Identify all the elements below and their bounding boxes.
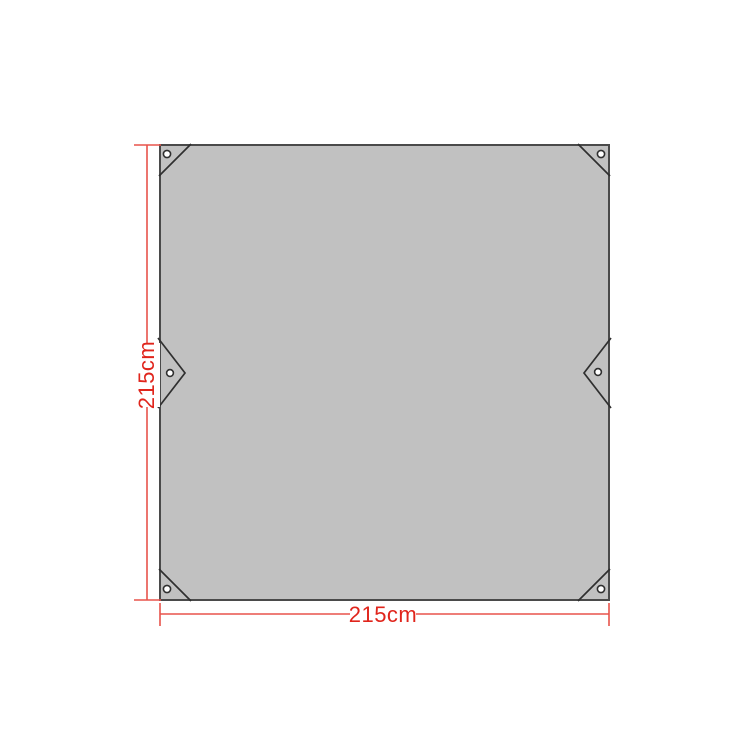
corner-grommet-bottom-left xyxy=(163,585,170,592)
height-dimension: 215cm xyxy=(134,145,161,600)
width-dimension-label: 215cm xyxy=(349,602,418,627)
corner-grommet-bottom-right xyxy=(597,585,604,592)
product-image-canvas: 215cm 215cm xyxy=(0,0,750,750)
tarp-body xyxy=(160,145,609,600)
side-grommet-right xyxy=(595,369,602,376)
tarp-dimension-diagram: 215cm 215cm xyxy=(0,0,750,750)
height-dimension-label: 215cm xyxy=(134,341,159,410)
width-dimension: 215cm xyxy=(160,602,609,627)
side-grommet-left xyxy=(167,370,174,377)
corner-grommet-top-right xyxy=(597,150,604,157)
corner-grommet-top-left xyxy=(163,150,170,157)
